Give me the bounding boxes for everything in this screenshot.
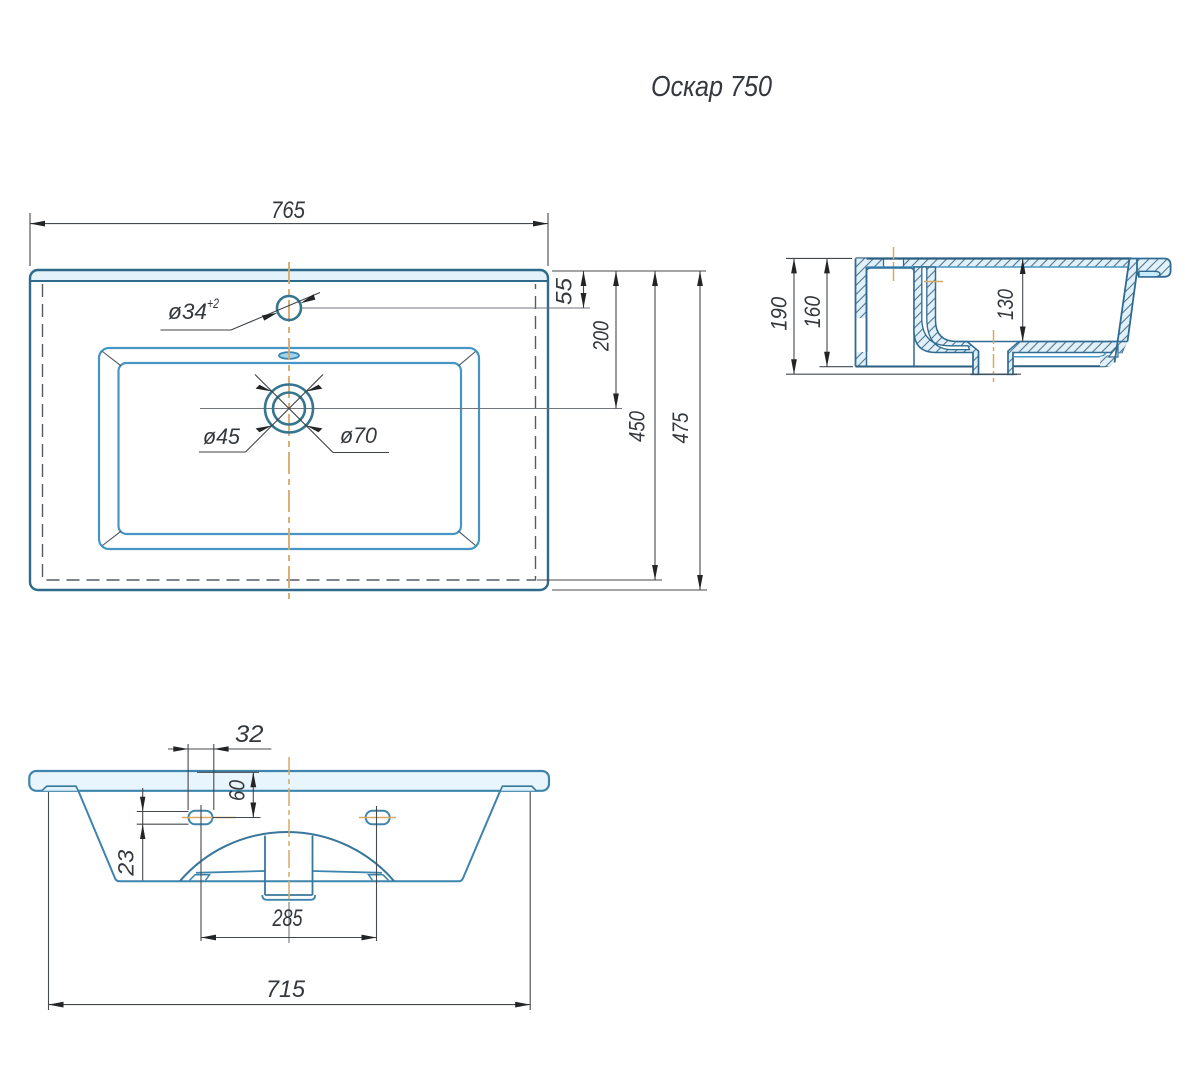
svg-text:715: 715	[266, 976, 306, 1003]
svg-text:285: 285	[272, 905, 303, 932]
svg-text:23: 23	[114, 849, 139, 877]
svg-text:ø34: ø34	[168, 299, 207, 324]
svg-text:160: 160	[800, 295, 825, 328]
svg-text:765: 765	[271, 197, 306, 224]
svg-text:55: 55	[551, 277, 576, 305]
svg-text:Оскар 750: Оскар 750	[651, 71, 772, 103]
svg-text:32: 32	[235, 721, 264, 748]
svg-text:130: 130	[993, 288, 1018, 320]
svg-text:ø70: ø70	[340, 423, 378, 448]
svg-text:450: 450	[624, 410, 649, 442]
svg-text:200: 200	[588, 320, 613, 351]
svg-text:+2: +2	[207, 295, 219, 311]
svg-text:475: 475	[668, 412, 693, 444]
svg-text:190: 190	[767, 296, 792, 331]
svg-text:60: 60	[225, 779, 250, 801]
svg-text:ø45: ø45	[203, 424, 241, 449]
